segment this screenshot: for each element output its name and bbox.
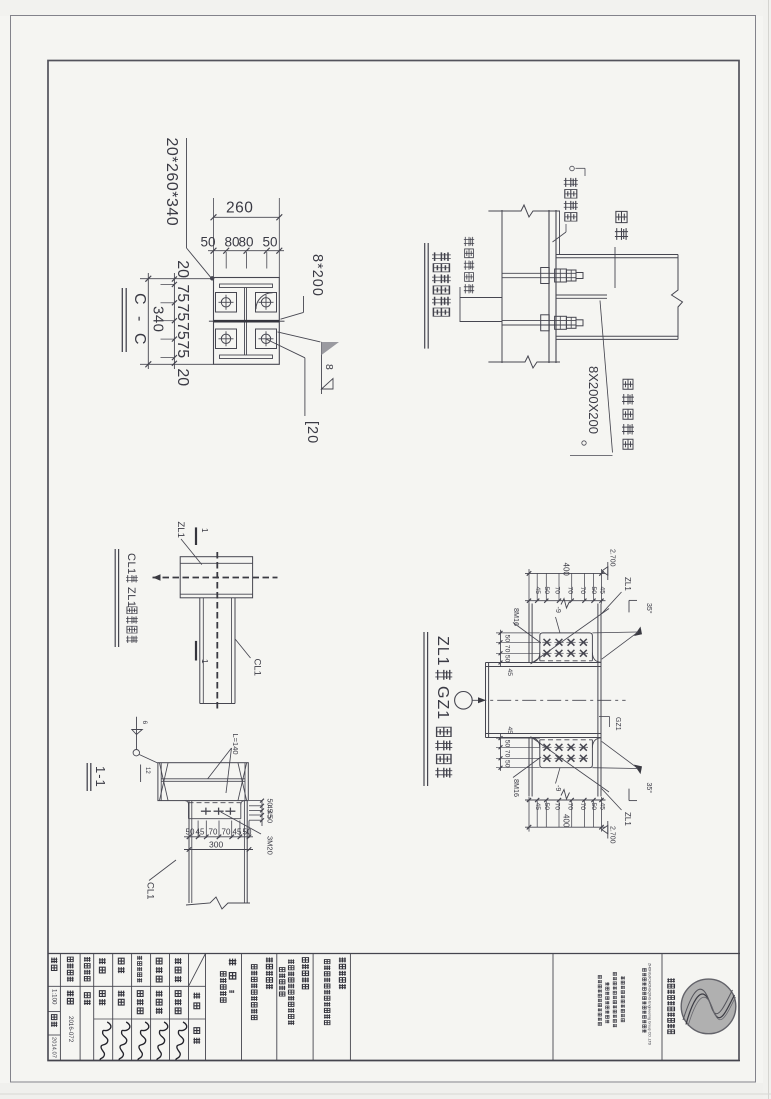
svg-text:ZL1: ZL1 [125, 587, 137, 607]
svg-text:75: 75 [174, 284, 191, 302]
svg-text:45: 45 [534, 803, 541, 811]
svg-text:45: 45 [233, 828, 242, 837]
svg-text:2.700: 2.700 [609, 549, 616, 567]
svg-text:50: 50 [186, 828, 195, 837]
svg-text:20: 20 [174, 368, 191, 386]
svg-text:ZL1: ZL1 [175, 522, 186, 538]
svg-text:ZHONGJICHONGQING Engineering G: ZHONGJICHONGQING Engineering Group CO.,L… [648, 963, 652, 1046]
svg-text:70: 70 [504, 645, 511, 653]
svg-text:45: 45 [599, 587, 606, 595]
svg-text:50: 50 [543, 803, 550, 811]
svg-text:35°: 35° [645, 783, 653, 794]
svg-text:70: 70 [554, 587, 561, 595]
svg-text:75: 75 [174, 322, 191, 340]
svg-text:C-C: C-C [131, 293, 148, 356]
svg-text:300: 300 [209, 839, 223, 849]
svg-text:70: 70 [579, 803, 586, 811]
svg-text:GZ1: GZ1 [614, 717, 621, 731]
svg-text:50: 50 [504, 760, 511, 768]
svg-text:70: 70 [222, 828, 231, 837]
svg-text:8M16: 8M16 [512, 779, 521, 797]
svg-text:20: 20 [174, 260, 191, 278]
svg-text:45: 45 [506, 727, 513, 735]
svg-text:CL1: CL1 [145, 882, 156, 899]
svg-text:45: 45 [506, 669, 513, 677]
svg-text:2016-072: 2016-072 [67, 1016, 74, 1043]
svg-text:1: 1 [200, 659, 209, 664]
svg-text:50: 50 [543, 587, 550, 595]
svg-text:1:100: 1:100 [51, 989, 58, 1005]
svg-text:50: 50 [504, 740, 511, 748]
svg-text:50: 50 [504, 655, 511, 663]
svg-text:8: 8 [323, 364, 335, 370]
svg-text:50: 50 [263, 235, 278, 250]
svg-text:75: 75 [174, 340, 191, 358]
svg-text:45: 45 [599, 803, 606, 811]
svg-text:75: 75 [174, 304, 191, 322]
svg-text:2014.07: 2014.07 [51, 1037, 57, 1058]
svg-text:45: 45 [534, 587, 541, 595]
svg-text:20*260*340: 20*260*340 [163, 138, 180, 227]
svg-text:1-1: 1-1 [93, 766, 108, 788]
svg-text:3M20: 3M20 [266, 836, 275, 855]
svg-text:CL1: CL1 [252, 659, 263, 676]
svg-text:8M16: 8M16 [512, 608, 521, 626]
svg-text:50: 50 [590, 587, 597, 595]
svg-text:50: 50 [266, 815, 273, 823]
svg-text:70: 70 [566, 587, 573, 595]
svg-text:-9: -9 [554, 607, 563, 613]
svg-text:L=140: L=140 [231, 734, 240, 755]
svg-text:CL1: CL1 [125, 553, 137, 575]
svg-text:70: 70 [554, 803, 561, 811]
svg-text:12: 12 [144, 767, 150, 774]
svg-text:400: 400 [562, 814, 571, 828]
svg-text:45: 45 [196, 828, 205, 837]
svg-text:35°: 35° [645, 603, 653, 614]
svg-text:2.700: 2.700 [609, 826, 616, 844]
svg-text:50: 50 [504, 635, 511, 643]
svg-text:70: 70 [566, 803, 573, 811]
svg-text:8*200: 8*200 [309, 254, 325, 297]
svg-text:ZL1: ZL1 [623, 577, 632, 591]
svg-text:GZ1: GZ1 [434, 686, 451, 720]
svg-text:50: 50 [243, 828, 252, 837]
svg-text:50: 50 [590, 803, 597, 811]
svg-text:70: 70 [504, 750, 511, 758]
svg-text:6: 6 [141, 721, 148, 725]
svg-text:260: 260 [226, 200, 253, 217]
svg-text:70: 70 [209, 828, 218, 837]
svg-text:1: 1 [200, 528, 209, 533]
svg-text:ZL1: ZL1 [434, 636, 451, 667]
svg-text:8X200X200: 8X200X200 [586, 366, 601, 434]
svg-text:50: 50 [201, 235, 216, 250]
svg-text:400: 400 [562, 563, 571, 577]
svg-text:70: 70 [579, 587, 586, 595]
svg-text:340: 340 [150, 306, 167, 333]
svg-text:-9: -9 [554, 785, 563, 791]
svg-text:ZL1: ZL1 [623, 812, 632, 826]
svg-text:[20: [20 [304, 421, 320, 444]
svg-text:80: 80 [225, 235, 240, 250]
svg-text:80: 80 [239, 235, 254, 250]
